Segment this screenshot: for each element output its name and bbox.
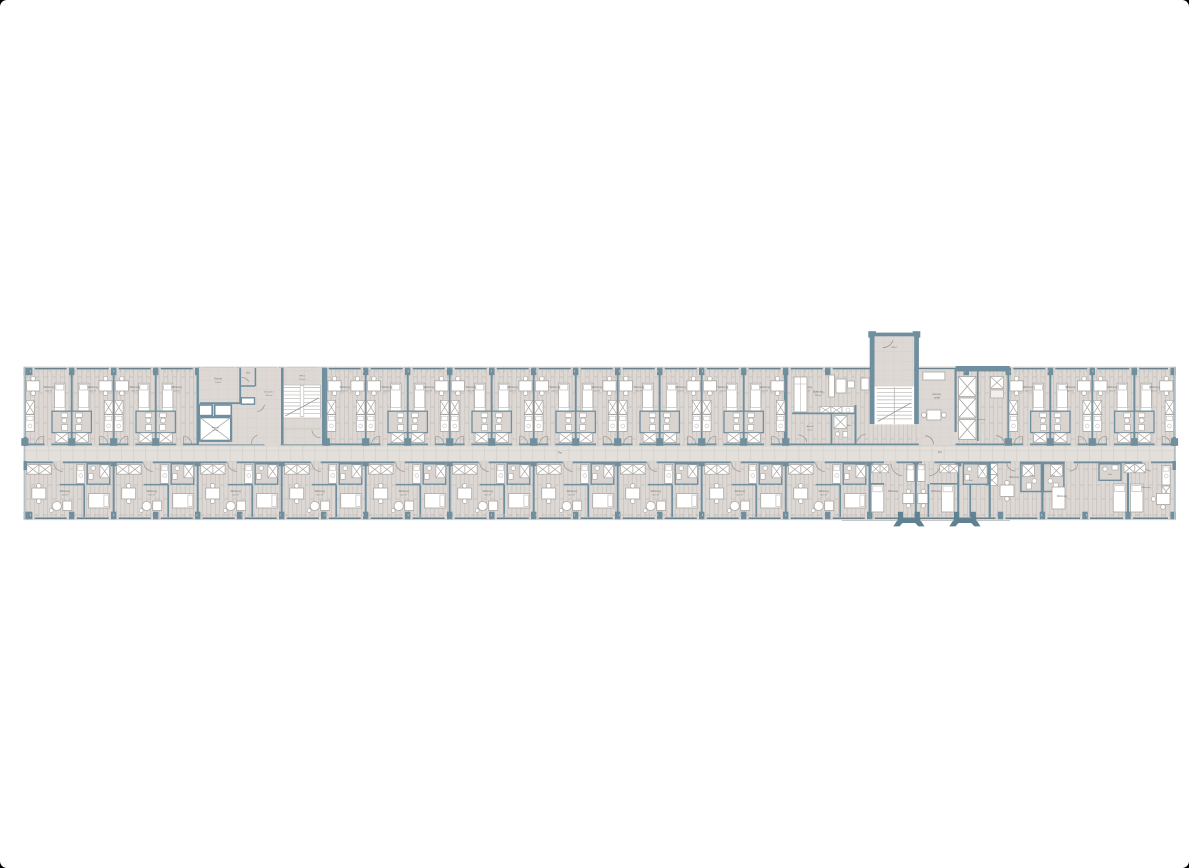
- svg-text:Bad: Bad: [969, 480, 972, 482]
- svg-text:Bad: Bad: [1108, 474, 1111, 476]
- svg-text:24,5 m²: 24,5 m²: [635, 390, 642, 393]
- svg-text:Wohnung: Wohnung: [340, 386, 351, 389]
- svg-text:Abstell: Abstell: [807, 425, 814, 428]
- svg-text:31,5 m²: 31,5 m²: [820, 493, 827, 496]
- svg-text:Wohnung: Wohnung: [567, 490, 578, 493]
- svg-text:Wohnung: Wohnung: [172, 386, 183, 389]
- svg-text:24,5 m²: 24,5 m²: [425, 390, 432, 393]
- svg-text:Wohnung: Wohnung: [735, 490, 746, 493]
- svg-text:22,1 m²: 22,1 m²: [266, 394, 273, 397]
- svg-text:Wohnung: Wohnung: [424, 386, 435, 389]
- svg-text:Wohnung: Wohnung: [931, 491, 942, 493]
- svg-text:Wohnung: Wohnung: [718, 386, 729, 389]
- svg-text:Vorraum 2: Vorraum 2: [264, 391, 275, 394]
- svg-text:Wohnung: Wohnung: [676, 386, 687, 389]
- svg-text:Wohnung: Wohnung: [813, 391, 824, 394]
- svg-text:Wohnung: Wohnung: [1141, 487, 1151, 489]
- svg-text:Müll: Müll: [246, 373, 250, 375]
- svg-text:Wohnung: Wohnung: [399, 490, 410, 493]
- svg-text:24,5 m²: 24,5 m²: [383, 390, 390, 393]
- svg-text:24,5 m²: 24,5 m²: [761, 390, 768, 393]
- svg-text:Wohnung: Wohnung: [315, 490, 326, 493]
- svg-text:Technik: Technik: [214, 379, 223, 381]
- svg-text:schaft: schaft: [934, 397, 940, 400]
- svg-text:38,5 m²: 38,5 m²: [815, 394, 822, 397]
- svg-text:Wohnung: Wohnung: [651, 490, 662, 493]
- svg-text:Wohnung: Wohnung: [1065, 386, 1076, 389]
- svg-text:Vorraum: Vorraum: [977, 418, 985, 421]
- svg-text:Wohnung: Wohnung: [130, 386, 141, 389]
- svg-text:24,5 m²: 24,5 m²: [341, 390, 348, 393]
- svg-text:24,5 m²: 24,5 m²: [677, 390, 684, 393]
- svg-text:Wohnung: Wohnung: [1057, 495, 1068, 498]
- svg-text:24,5 m²: 24,5 m²: [719, 390, 726, 393]
- svg-text:24,5 m²: 24,5 m²: [551, 390, 558, 393]
- svg-text:9,8 m²: 9,8 m²: [215, 381, 221, 384]
- svg-text:Wohnung: Wohnung: [634, 386, 645, 389]
- svg-text:31,5 m²: 31,5 m²: [484, 493, 491, 496]
- svg-text:24,5 m²: 24,5 m²: [593, 390, 600, 393]
- svg-text:Wohnung: Wohnung: [44, 386, 55, 389]
- svg-text:Wohnung: Wohnung: [508, 386, 519, 389]
- svg-text:Bad: Bad: [847, 425, 850, 427]
- svg-text:Wohnung: Wohnung: [888, 491, 899, 493]
- svg-text:Wohnung: Wohnung: [147, 490, 158, 493]
- svg-text:Flur: Flur: [558, 452, 562, 455]
- svg-text:31,5 m²: 31,5 m²: [61, 493, 68, 496]
- svg-text:Wohnung: Wohnung: [1107, 386, 1118, 389]
- svg-text:31,5 m²: 31,5 m²: [568, 493, 575, 496]
- svg-text:24,5 m²: 24,5 m²: [1109, 390, 1116, 393]
- svg-text:31,5 m²: 31,5 m²: [400, 493, 407, 496]
- svg-text:24,5 m²: 24,5 m²: [89, 390, 96, 393]
- svg-text:Wohnung: Wohnung: [760, 386, 771, 389]
- svg-text:24,5 m²: 24,5 m²: [45, 390, 52, 393]
- svg-text:Wohnung: Wohnung: [819, 490, 830, 493]
- svg-text:Wohnung: Wohnung: [231, 490, 242, 493]
- svg-text:Bad: Bad: [1052, 475, 1055, 477]
- svg-text:Wohnung: Wohnung: [1009, 477, 1020, 479]
- svg-text:31,5 m²: 31,5 m²: [652, 493, 659, 496]
- svg-text:TRH 1: TRH 1: [299, 376, 306, 378]
- svg-text:24,5 m²: 24,5 m²: [173, 390, 180, 393]
- svg-text:4,2 m²: 4,2 m²: [212, 429, 218, 432]
- svg-text:Wohnung: Wohnung: [483, 490, 494, 493]
- svg-text:31,5 m²: 31,5 m²: [316, 493, 323, 496]
- svg-text:TRH 2: TRH 2: [891, 347, 898, 349]
- svg-text:Wohnung: Wohnung: [1149, 386, 1160, 389]
- svg-text:24,5 m²: 24,5 m²: [1067, 390, 1074, 393]
- svg-text:Wohnung: Wohnung: [382, 386, 393, 389]
- svg-text:24,5 m²: 24,5 m²: [509, 390, 516, 393]
- svg-text:31,5 m²: 31,5 m²: [232, 493, 239, 496]
- svg-text:Wohnung: Wohnung: [60, 490, 71, 493]
- svg-text:Flur: Flur: [938, 451, 942, 454]
- svg-text:Gemein-: Gemein-: [932, 394, 941, 396]
- svg-text:31,5 m²: 31,5 m²: [148, 493, 155, 496]
- svg-text:Aufzug: Aufzug: [212, 426, 220, 429]
- svg-text:24,5 m²: 24,5 m²: [131, 390, 138, 393]
- svg-text:24,5 m²: 24,5 m²: [1025, 390, 1032, 393]
- svg-text:31,5 m²: 31,5 m²: [736, 493, 743, 496]
- svg-text:Wohnung: Wohnung: [550, 386, 561, 389]
- svg-text:Wohnung: Wohnung: [1023, 386, 1034, 389]
- svg-text:24,5 m²: 24,5 m²: [1151, 390, 1158, 393]
- svg-text:Wohnung: Wohnung: [88, 386, 99, 389]
- svg-text:Bad: Bad: [1030, 475, 1033, 477]
- svg-text:Wohnung: Wohnung: [592, 386, 603, 389]
- svg-text:Wohnung: Wohnung: [466, 386, 477, 389]
- svg-text:17,6 m²: 17,6 m²: [299, 378, 306, 381]
- svg-text:24,5 m²: 24,5 m²: [467, 390, 474, 393]
- svg-text:6,2 m²: 6,2 m²: [807, 428, 813, 431]
